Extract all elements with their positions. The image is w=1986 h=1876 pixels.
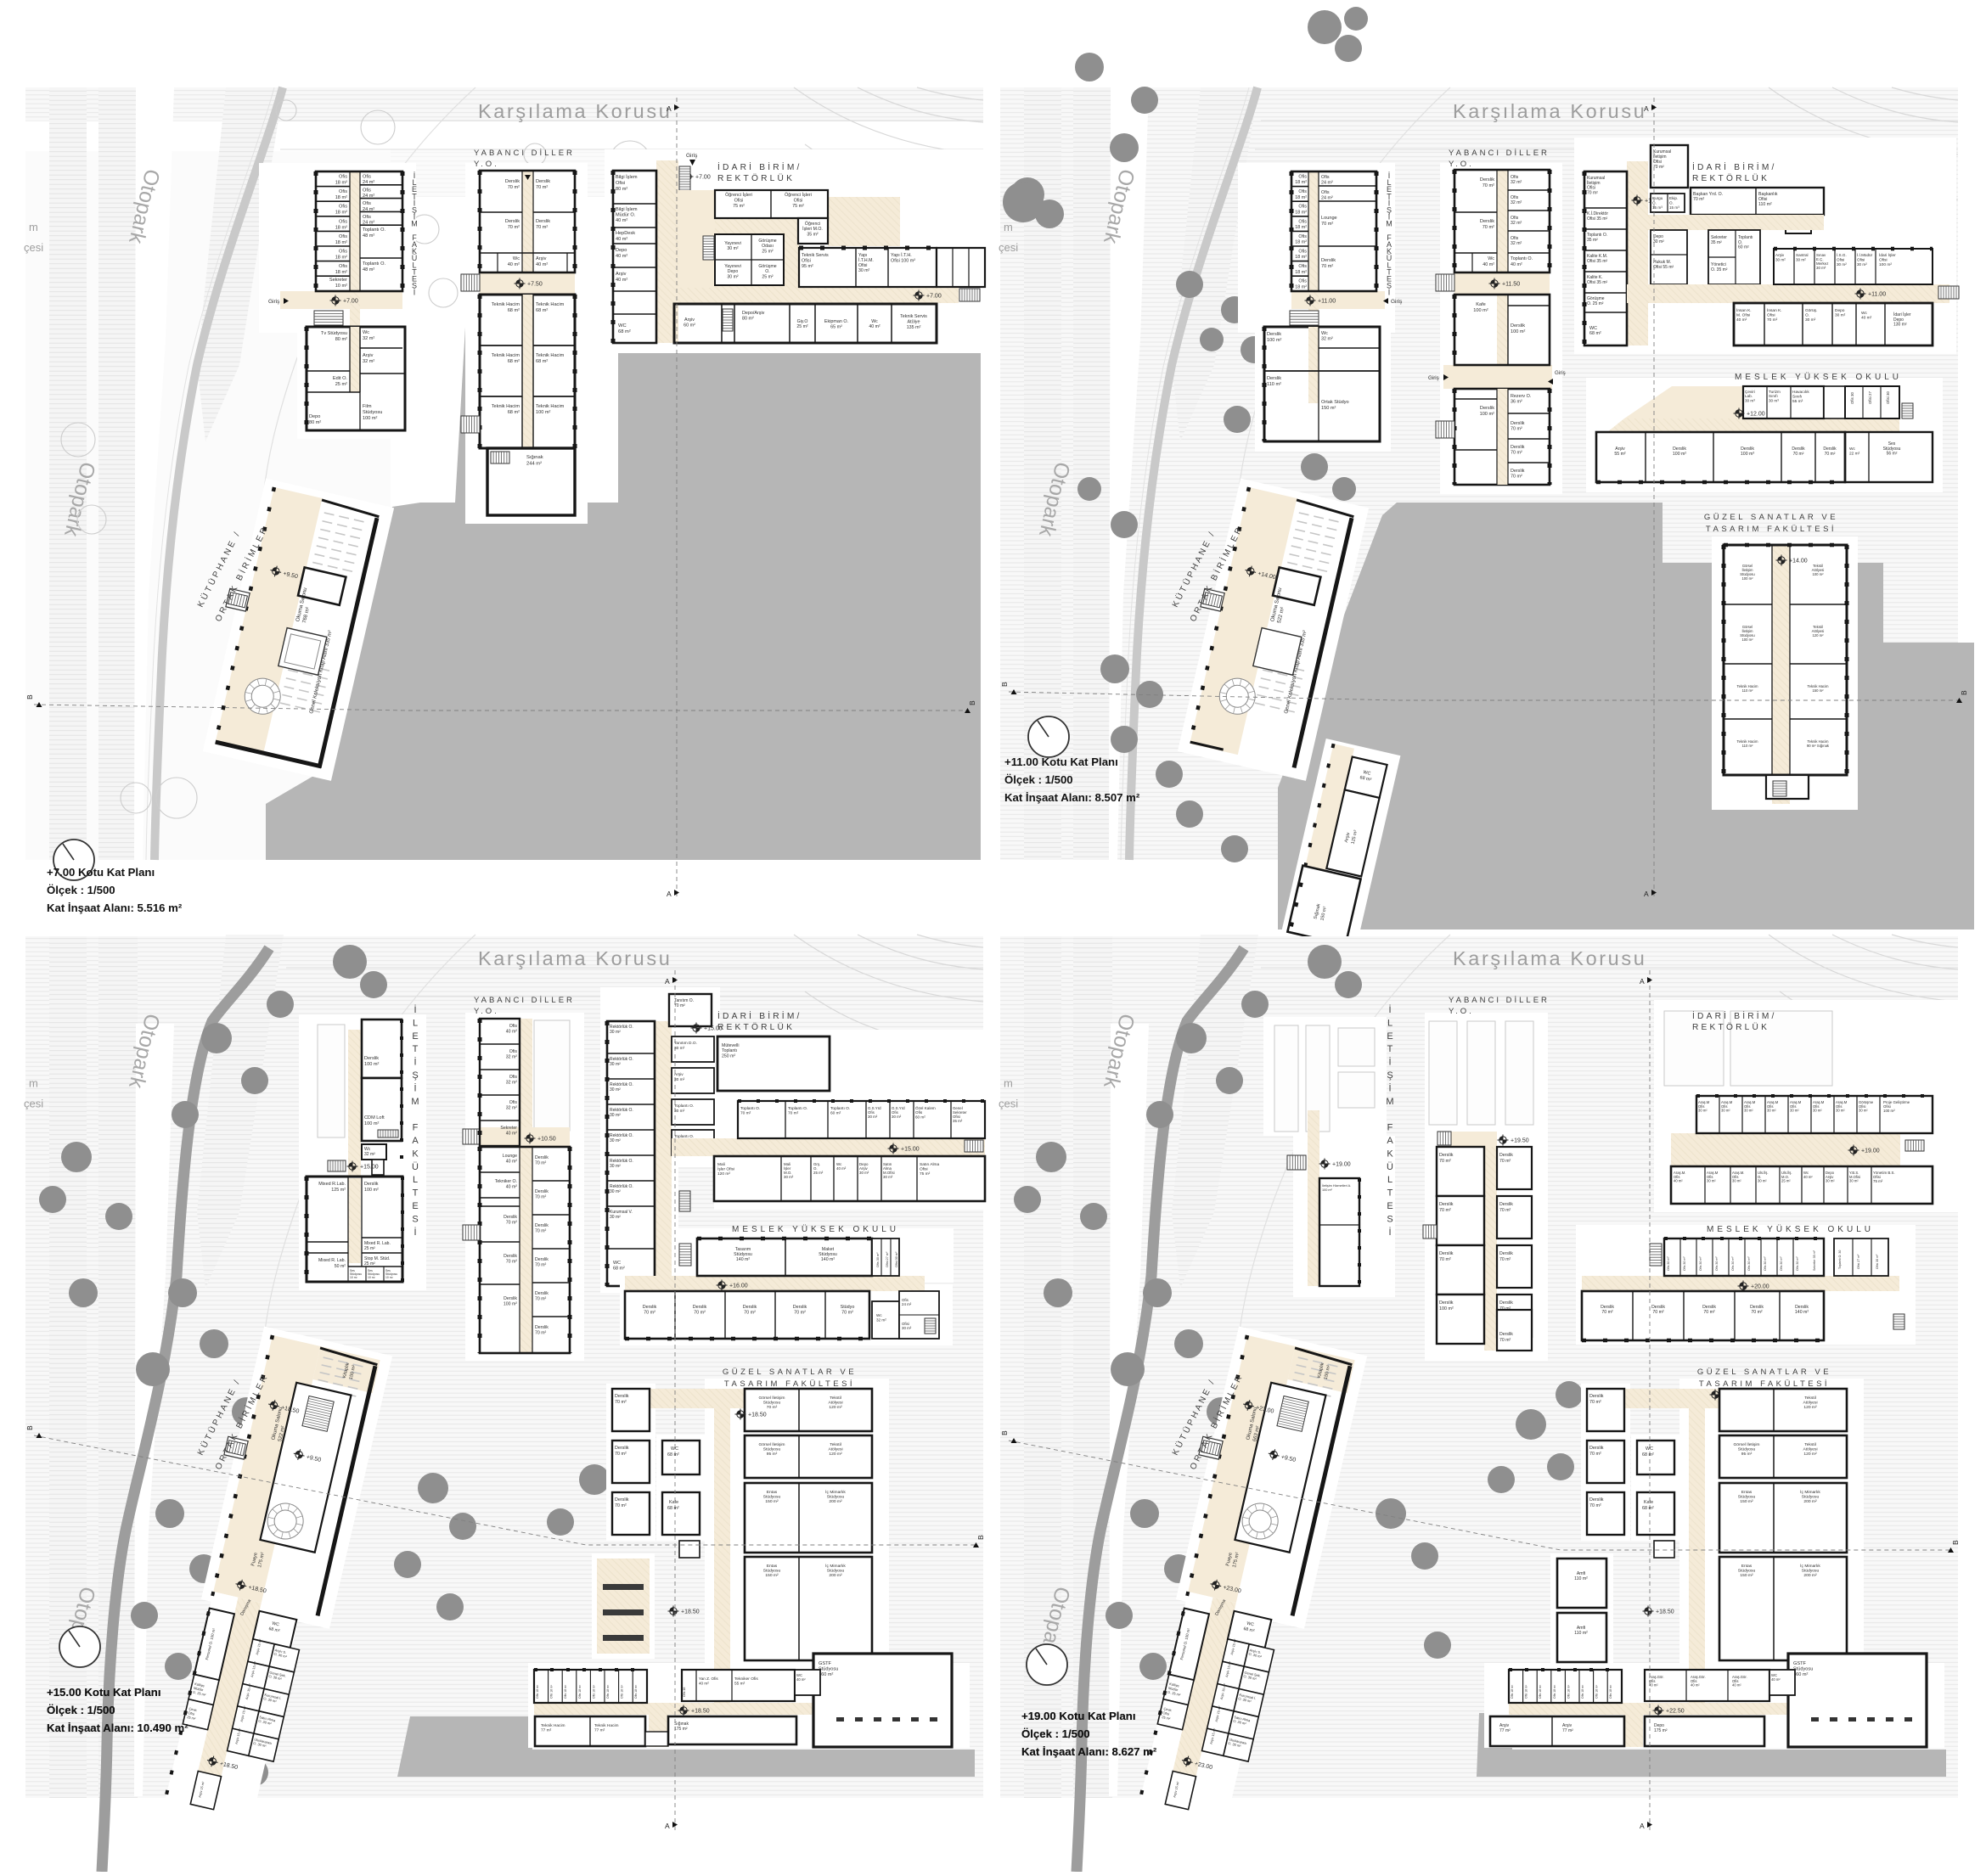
svg-text:40 m²: 40 m² [1771,1677,1781,1682]
svg-text:30 m²: 30 m² [1826,1179,1835,1183]
svg-text:Karşılama Korusu: Karşılama Korusu [1453,100,1646,122]
svg-text:70 m²: 70 m² [1511,475,1522,480]
svg-text:40 m²: 40 m² [508,262,520,267]
svg-text:Ofis: Ofis [1321,175,1330,180]
svg-text:120 m²: 120 m² [829,1452,842,1457]
svg-text:A: A [667,104,672,113]
svg-text:130 m²: 130 m² [1893,323,1907,328]
svg-text:Kafe: Kafe [1644,1500,1653,1505]
svg-text:40 m²: 40 m² [869,324,880,329]
svg-text:65 m²: 65 m² [830,325,842,330]
svg-text:25 m²: 25 m² [762,249,774,254]
svg-text:İşler Ofisi: İşler Ofisi [717,1166,734,1172]
svg-text:70 m²: 70 m² [535,1331,547,1336]
svg-text:+15.00: +15.00 [901,1147,920,1153]
svg-text:Stüdyosu: Stüdyosu [1738,1495,1756,1500]
svg-text:18 m²: 18 m² [1295,180,1307,185]
svg-text:Derslik: Derslik [364,1182,379,1187]
svg-text:70 m²: 70 m² [1482,183,1494,188]
svg-text:Ofis: Ofis [509,1024,518,1029]
svg-text:Ofis 30: Ofis 30 [1850,392,1854,404]
svg-text:+16.00: +16.00 [729,1283,748,1289]
svg-text:Giriş: Giriş [1428,375,1439,381]
svg-text:Derslik: Derslik [1511,469,1525,474]
svg-text:+18.50: +18.50 [691,1709,710,1715]
svg-text:100 m²: 100 m² [1511,329,1526,334]
svg-text:Derslik: Derslik [1511,445,1525,450]
svg-text:Depo: Depo [616,248,627,253]
svg-text:55 m³: 55 m³ [1792,399,1803,404]
svg-text:Teknik Hacim: Teknik Hacim [492,353,520,358]
svg-text:Ofisi: Ofisi [1857,257,1865,261]
svg-text:30 m²: 30 m² [727,246,739,251]
svg-text:Ofisi 100 m²: Ofisi 100 m² [891,259,915,264]
svg-text:Ofis 30 m²: Ofis 30 m² [1747,1256,1751,1271]
svg-text:70 m²: 70 m² [1499,1208,1511,1213]
svg-text:70 m²: 70 m² [740,1111,751,1116]
svg-text:Arşiv: Arşiv [1775,253,1785,257]
svg-text:Ofis 30 m²: Ofis 30 m² [1796,1256,1799,1271]
svg-text:Görüş.: Görüş. [1805,308,1817,313]
svg-text:Y.O.: Y.O. [474,160,499,169]
svg-text:Ölçek : 1/500: Ölçek : 1/500 [1004,773,1073,786]
svg-text:Ofis 18 m²: Ofis 18 m² [1595,1684,1599,1699]
svg-text:Yayınevi: Yayınevi [724,241,741,246]
svg-text:Ofis 18: Ofis 18 [683,1688,686,1697]
svg-text:100 m²: 100 m² [536,410,551,415]
svg-text:100 m²: 100 m² [364,1062,380,1067]
svg-text:Atölyesi: Atölyesi [1803,1401,1817,1406]
svg-text:68 m²: 68 m² [508,308,520,313]
svg-text:İç Mimarlık: İç Mimarlık [825,1563,846,1569]
svg-text:Teknik Servis: Teknik Servis [900,314,927,319]
svg-text:Derslik: Derslik [535,1155,549,1160]
svg-text:Teknik Hacim: Teknik Hacim [492,404,520,409]
svg-text:Toplantı O.: Toplantı O. [363,227,385,233]
svg-text:A: A [1387,1136,1393,1146]
svg-text:Ofis 18 m²: Ofis 18 m² [1567,1684,1570,1699]
svg-text:Derslik: Derslik [1439,1300,1454,1306]
svg-text:+12.00: +12.00 [1747,412,1765,418]
svg-text:150 m²: 150 m² [1321,406,1336,411]
svg-text:Ölçek : 1/500: Ölçek : 1/500 [47,1704,115,1716]
svg-text:Ofis: Ofis [339,205,347,210]
svg-text:Giy.O: Giy.O [797,319,808,324]
svg-text:+15.00: +15.00 [360,1165,379,1171]
svg-text:35 m²: 35 m² [1587,238,1598,243]
svg-text:Ofis 30 m²: Ofis 30 m² [876,1252,880,1267]
svg-text:30 m²: 30 m² [610,1164,621,1169]
svg-text:REKTÖRLÜK: REKTÖRLÜK [1692,173,1769,183]
svg-text:70 m²: 70 m² [506,1221,518,1226]
svg-text:Ofisi 55 m²: Ofisi 55 m² [1653,265,1674,270]
svg-text:70 m²: 70 m² [1703,1310,1715,1315]
svg-text:140 m²: 140 m² [736,1257,750,1262]
svg-text:Derslik: Derslik [615,1394,629,1399]
svg-text:30 m²: 30 m² [1849,1179,1859,1183]
svg-text:30 m²: 30 m² [902,1326,912,1330]
svg-text:Özel Kalem: Özel Kalem [915,1105,936,1110]
svg-text:120 m²: 120 m² [1803,1405,1817,1410]
svg-text:Ofis: Ofis [1298,250,1307,255]
svg-text:30 m²: 30 m² [859,1171,869,1175]
svg-text:77 m²: 77 m² [541,1728,552,1733]
svg-text:55 m²: 55 m² [734,1682,745,1687]
svg-text:Ofisi: Ofisi [802,259,811,264]
svg-text:Toplantı O.: Toplantı O. [740,1106,760,1111]
svg-text:30 m²: 30 m² [868,1115,878,1119]
svg-text:150 m²: 150 m² [1812,688,1824,693]
svg-text:Rezerv O.: Rezerv O. [1511,394,1531,399]
svg-text:Sekreter 35 m²: Sekreter 35 m² [1813,1250,1816,1271]
svg-text:Kat İnşaat Alanı: 8.627 m²: Kat İnşaat Alanı: 8.627 m² [1021,1745,1157,1758]
svg-text:Stüdyosu: Stüdyosu [763,1495,781,1500]
svg-text:Görüşme: Görüşme [758,264,776,269]
svg-text:İDARİ BİRİM/: İDARİ BİRİM/ [717,1010,802,1021]
svg-text:Wc: Wc [513,256,520,261]
svg-text:32 m²: 32 m² [363,336,374,341]
svg-text:100 m²: 100 m² [364,1188,379,1193]
svg-text:Atölyesi: Atölyesi [828,1447,842,1452]
svg-text:32 m²: 32 m² [1511,241,1522,246]
svg-text:Santral: Santral [1796,253,1809,257]
svg-text:TASARIM FAKÜLTESİ: TASARIM FAKÜLTESİ [1706,525,1837,534]
svg-text:m: m [29,221,38,233]
svg-text:O.: O. [765,269,769,274]
svg-text:90 m² Sığınak: 90 m² Sığınak [1807,744,1830,748]
svg-text:70 m²: 70 m² [1589,1400,1601,1405]
svg-text:Ofis 18 m²: Ofis 18 m² [1511,1684,1514,1699]
svg-text:çesi: çesi [24,1098,43,1110]
svg-text:Arşiv: Arşiv [363,353,374,358]
svg-text:Derslik: Derslik [535,1189,549,1194]
svg-text:Derslik: Derslik [615,1446,629,1451]
svg-text:Derslik: Derslik [504,1296,517,1301]
svg-text:Edit O.: Edit O. [333,376,348,381]
svg-text:Ofisi: Ofisi [1879,258,1888,263]
svg-text:A: A [1644,104,1649,113]
svg-text:70 m²: 70 m² [794,1311,806,1316]
svg-text:70 m²: 70 m² [1499,1338,1511,1343]
svg-text:Wc: Wc [871,319,878,324]
svg-text:İ.S.G.: İ.S.G. [1837,252,1847,257]
svg-text:100 m²: 100 m² [1812,572,1824,576]
svg-text:M: M [1386,1097,1393,1107]
svg-text:Stüdyosu: Stüdyosu [827,1569,845,1574]
svg-text:Kafe: Kafe [669,1500,678,1505]
svg-text:Mixed R.Lab.: Mixed R.Lab. [318,1182,346,1187]
svg-text:75 m²: 75 m² [920,1171,931,1177]
svg-text:10 m²: 10 m² [335,284,347,289]
svg-text:25 m²: 25 m² [335,382,347,387]
svg-text:60 m²: 60 m² [830,1111,841,1116]
svg-text:Depo: Depo [728,269,739,274]
svg-text:+11.50: +11.50 [1502,282,1520,288]
svg-text:70 m²: 70 m² [694,1311,706,1316]
svg-text:120 m²: 120 m² [1803,1452,1817,1457]
svg-text:25 m²: 25 m² [796,324,808,329]
svg-text:GSTF: GSTF [1793,1661,1806,1666]
svg-text:40 m²: 40 m² [616,278,627,283]
svg-text:68 m²: 68 m² [536,308,548,313]
svg-text:Ofisi 30 m²: Ofisi 30 m² [1876,1254,1879,1269]
svg-text:32 m²: 32 m² [1321,337,1333,342]
svg-text:Sınıfı: Sınıfı [1792,394,1802,399]
svg-text:70 m²: 70 m² [1587,190,1598,195]
svg-text:18 m²: 18 m² [1295,240,1307,245]
svg-text:+11.00 Kotu Kat Planı: +11.00 Kotu Kat Planı [1004,755,1118,768]
svg-text:+18.50: +18.50 [681,1609,700,1615]
svg-text:Tekniker Ofis: Tekniker Ofis [734,1677,758,1682]
svg-text:32 m²: 32 m² [876,1317,886,1322]
svg-text:İ.İ.Müdür: İ.İ.Müdür [1857,252,1873,257]
svg-text:YABANCI DİLLER: YABANCI DİLLER [1449,996,1550,1005]
svg-text:40 m²: 40 m² [1511,262,1522,267]
svg-text:30 m²: 30 m² [610,1030,621,1035]
svg-text:Derslik: Derslik [505,179,520,184]
svg-text:70 m²: 70 m² [506,1260,518,1265]
svg-text:77 m²: 77 m² [1562,1728,1573,1733]
svg-text:+15.00 Kotu Kat Planı: +15.00 Kotu Kat Planı [47,1686,160,1699]
svg-text:Görüşme: Görüşme [758,239,776,244]
svg-text:m: m [29,1077,38,1090]
svg-text:70 m²: 70 m² [508,225,520,230]
svg-text:GÜZEL SANATLAR VE: GÜZEL SANATLAR VE [723,1368,857,1377]
svg-text:+11.00: +11.00 [1868,292,1886,298]
svg-text:Derslik: Derslik [1439,1251,1454,1256]
svg-text:80 m²: 80 m² [309,420,321,425]
svg-text:40 m²: 40 m² [616,254,627,259]
svg-text:Wc: Wc [1861,311,1868,316]
svg-text:Arşiv: Arşiv [616,272,627,277]
svg-text:Ofis 18 m²: Ofis 18 m² [1539,1684,1542,1699]
svg-text:110 m²: 110 m² [1574,1631,1588,1636]
svg-text:30 m²: 30 m² [1813,1109,1822,1113]
svg-text:30 m²: 30 m² [1775,257,1786,261]
svg-text:GÜZEL SANATLAR VE: GÜZEL SANATLAR VE [1704,513,1838,522]
svg-text:Ofis 18 m²: Ofis 18 m² [634,1684,638,1699]
svg-text:30 m²: 30 m² [1836,1109,1845,1113]
svg-text:Derslik: Derslik [1480,177,1494,183]
svg-text:30 m²: 30 m² [1805,317,1816,323]
svg-text:30 m²: 30 m² [1698,1109,1708,1113]
svg-text:Müdür O.: Müdür O. [616,213,636,218]
svg-text:Tekstil: Tekstil [1804,1396,1816,1401]
svg-text:100 m²: 100 m² [1439,1306,1454,1312]
svg-text:+15.00: +15.00 [704,1026,723,1032]
svg-text:70 m²: 70 m² [1511,427,1522,432]
svg-text:18 m²: 18 m² [335,240,347,245]
svg-text:+19.50: +19.50 [1511,1138,1529,1144]
svg-text:70 m²: 70 m² [536,225,548,230]
svg-text:Ofis 30 m²: Ofis 30 m² [1731,1256,1735,1271]
svg-text:A: A [1644,890,1649,898]
svg-text:18 m²: 18 m² [1295,284,1307,289]
svg-text:100 m²: 100 m² [1673,452,1686,457]
svg-text:100 m²: 100 m² [1267,338,1282,343]
svg-text:İ: İ [1388,289,1391,297]
svg-text:Derslik: Derslik [1511,421,1525,426]
svg-text:70 m²: 70 m² [1321,222,1333,227]
svg-text:95 m²: 95 m² [802,264,813,269]
svg-text:68 m²: 68 m² [1642,1506,1654,1511]
svg-text:40 m²: 40 m² [536,262,548,267]
svg-text:B: B [968,700,976,705]
svg-text:HepDesk: HepDesk [616,231,635,236]
svg-text:+20.00: +20.00 [1751,1284,1769,1290]
svg-text:T: T [413,1188,419,1199]
svg-text:70 m²: 70 m² [1499,1257,1511,1262]
svg-text:Yayınevi: Yayınevi [724,264,741,269]
svg-text:18 m²: 18 m² [335,225,347,230]
svg-text:İ: İ [1388,1004,1391,1015]
svg-text:Stüdyosu: Stüdyosu [763,1447,781,1452]
svg-text:Ü: Ü [1387,1162,1393,1172]
svg-text:Ofisi 30: Ofisi 30 [1886,391,1890,404]
svg-text:Ofis: Ofis [1298,219,1307,224]
svg-text:MESLEK YÜKSEK OKULU: MESLEK YÜKSEK OKULU [1707,1224,1874,1234]
svg-text:Entas: Entas [767,1564,778,1569]
svg-text:İ: İ [414,1082,416,1093]
svg-text:Ölçek : 1/500: Ölçek : 1/500 [1021,1727,1090,1740]
svg-text:Ofis 18 m²: Ofis 18 m² [550,1684,554,1699]
svg-text:Ekipman O.: Ekipman O. [824,319,848,324]
svg-text:200 m²: 200 m² [1803,1499,1817,1504]
svg-text:Toplantı O. 30: Toplantı O. 30 [1838,1250,1842,1269]
svg-text:İşleri M.O.: İşleri M.O. [802,226,823,232]
svg-text:Ofis 18 m²: Ofis 18 m² [1525,1684,1528,1699]
svg-text:200 m²: 200 m² [829,1499,842,1504]
svg-text:T: T [1387,1188,1393,1199]
svg-text:70 m²: 70 m² [1482,225,1494,230]
svg-text:Ofis 18 m²: Ofis 18 m² [1581,1684,1584,1699]
svg-text:Y.O.: Y.O. [1449,160,1474,169]
svg-text:Ofisi 27: Ofisi 27 [1868,391,1872,404]
svg-text:100 m²: 100 m² [1883,1109,1895,1113]
svg-text:100 m²: 100 m² [1473,308,1488,313]
svg-text:Derslik: Derslik [536,219,550,224]
svg-text:Derslik: Derslik [536,179,550,184]
svg-text:32 m²: 32 m² [364,1152,375,1157]
svg-text:95 m²: 95 m² [1741,1452,1753,1457]
svg-text:İletişim Hizmetleri A.: İletişim Hizmetleri A. [1322,1183,1351,1188]
svg-text:WC: WC [671,1446,678,1452]
svg-text:18 m²: 18 m² [335,256,347,261]
svg-text:75 m²: 75 m² [1873,1179,1883,1183]
svg-text:Mütevelli: Mütevelli [722,1043,739,1048]
svg-text:Karşılama Korusu: Karşılama Korusu [478,100,672,122]
svg-text:B: B [976,1535,985,1540]
svg-text:Derslik: Derslik [1480,406,1494,411]
svg-text:70 m²: 70 m² [1825,452,1836,457]
svg-text:çesi: çesi [999,1098,1018,1110]
svg-text:Teknik Hacim: Teknik Hacim [536,302,565,307]
svg-text:Ofisi: Ofisi [734,198,744,203]
svg-text:95 m²: 95 m² [767,1452,778,1457]
svg-text:Sekreter: Sekreter [329,278,347,283]
svg-text:Ofis: Ofis [339,175,347,180]
svg-text:Stüdyo: Stüdyo [841,1305,855,1310]
svg-text:110 m²: 110 m² [1574,1576,1588,1581]
svg-text:70 m²: 70 m² [615,1452,627,1457]
svg-text:Ş: Ş [1387,1070,1392,1081]
svg-text:Ofis 30 m²: Ofis 30 m² [1699,1256,1702,1271]
svg-text:70 m²: 70 m² [767,1405,778,1410]
svg-text:A: A [665,1822,670,1830]
svg-text:30 m²: 30 m² [610,1215,621,1220]
svg-text:Stüdyosu: Stüdyosu [819,1667,838,1672]
svg-text:İDARİ BİRİM/: İDARİ BİRİM/ [717,161,802,172]
svg-text:+18.50: +18.50 [748,1413,767,1418]
svg-text:M: M [1386,220,1392,228]
svg-text:WC: WC [1589,326,1597,331]
svg-text:Stüdyosu: Stüdyosu [1802,1495,1820,1500]
svg-text:Derslik: Derslik [1589,1497,1604,1502]
svg-text:100 m²: 100 m² [363,416,378,421]
svg-text:Ekip.: Ekip. [1669,196,1678,200]
svg-text:Ortak Stüdyo: Ortak Stüdyo [1321,400,1349,405]
svg-text:K: K [1387,1149,1393,1159]
svg-text:O.: O. [1652,200,1657,205]
svg-text:75 m²: 75 m² [792,204,804,209]
svg-text:30 m²: 30 m² [1796,257,1806,261]
svg-text:Ofis: Ofis [1298,234,1307,239]
svg-text:İç Mimarlık: İç Mimarlık [825,1489,846,1495]
svg-text:Stüdyosu: Stüdyosu [1802,1569,1820,1574]
svg-text:B: B [1951,1540,1960,1545]
svg-text:WC: WC [1646,1446,1653,1452]
svg-text:70 m²: 70 m² [1439,1159,1451,1164]
svg-text:Derslik: Derslik [1439,1202,1454,1207]
svg-text:Ofis 18 m²: Ofis 18 m² [1553,1684,1556,1699]
svg-text:70 m²: 70 m² [1751,1310,1763,1315]
svg-text:68 m²: 68 m² [508,359,520,364]
svg-text:140 m²: 140 m² [821,1257,835,1262]
svg-text:32 m²: 32 m² [506,1106,518,1111]
svg-text:Wc: Wc [363,330,369,335]
svg-text:Derslik: Derslik [1589,1446,1604,1451]
svg-text:Arşiv: Arşiv [674,1072,684,1077]
svg-text:L: L [1387,1018,1392,1028]
svg-text:Atölyesi: Atölyesi [828,1401,842,1406]
svg-text:70 m²: 70 m² [1511,451,1522,456]
svg-text:30 m²: 30 m² [892,1115,902,1119]
svg-text:İ: İ [414,1057,416,1068]
svg-text:Ofis 18 m²: Ofis 18 m² [621,1684,624,1699]
svg-text:120 m²: 120 m² [717,1171,730,1177]
svg-text:40 m²: 40 m² [506,1132,518,1137]
svg-text:Ofis: Ofis [1298,279,1307,284]
svg-text:İ: İ [1388,1057,1391,1068]
svg-text:Ofisi 30 m²: Ofisi 30 m² [895,1251,898,1267]
svg-text:Y.O.: Y.O. [1449,1007,1474,1016]
svg-text:35 m²: 35 m² [1711,240,1722,245]
svg-text:Ofisi 35 m²: Ofisi 35 m² [1587,280,1608,285]
svg-text:Ofis: Ofis [1298,264,1307,269]
svg-text:O. 25 m²: O. 25 m² [1587,301,1604,306]
svg-text:İ.T.H.M.: İ.T.H.M. [858,257,874,263]
svg-text:68 m²: 68 m² [1589,331,1601,336]
svg-text:30 m²: 30 m² [784,1175,794,1179]
svg-text:Ü: Ü [412,1162,419,1172]
svg-text:Kafe: Kafe [1476,302,1486,307]
svg-text:Derslik: Derslik [693,1305,707,1310]
svg-text:B: B [25,694,34,699]
svg-text:30 m²: 30 m² [610,1062,621,1067]
svg-text:10 m²: 10 m² [368,1276,376,1279]
svg-text:Toplantı O.: Toplantı O. [674,1104,694,1109]
svg-text:40 m²: 40 m² [699,1681,709,1685]
